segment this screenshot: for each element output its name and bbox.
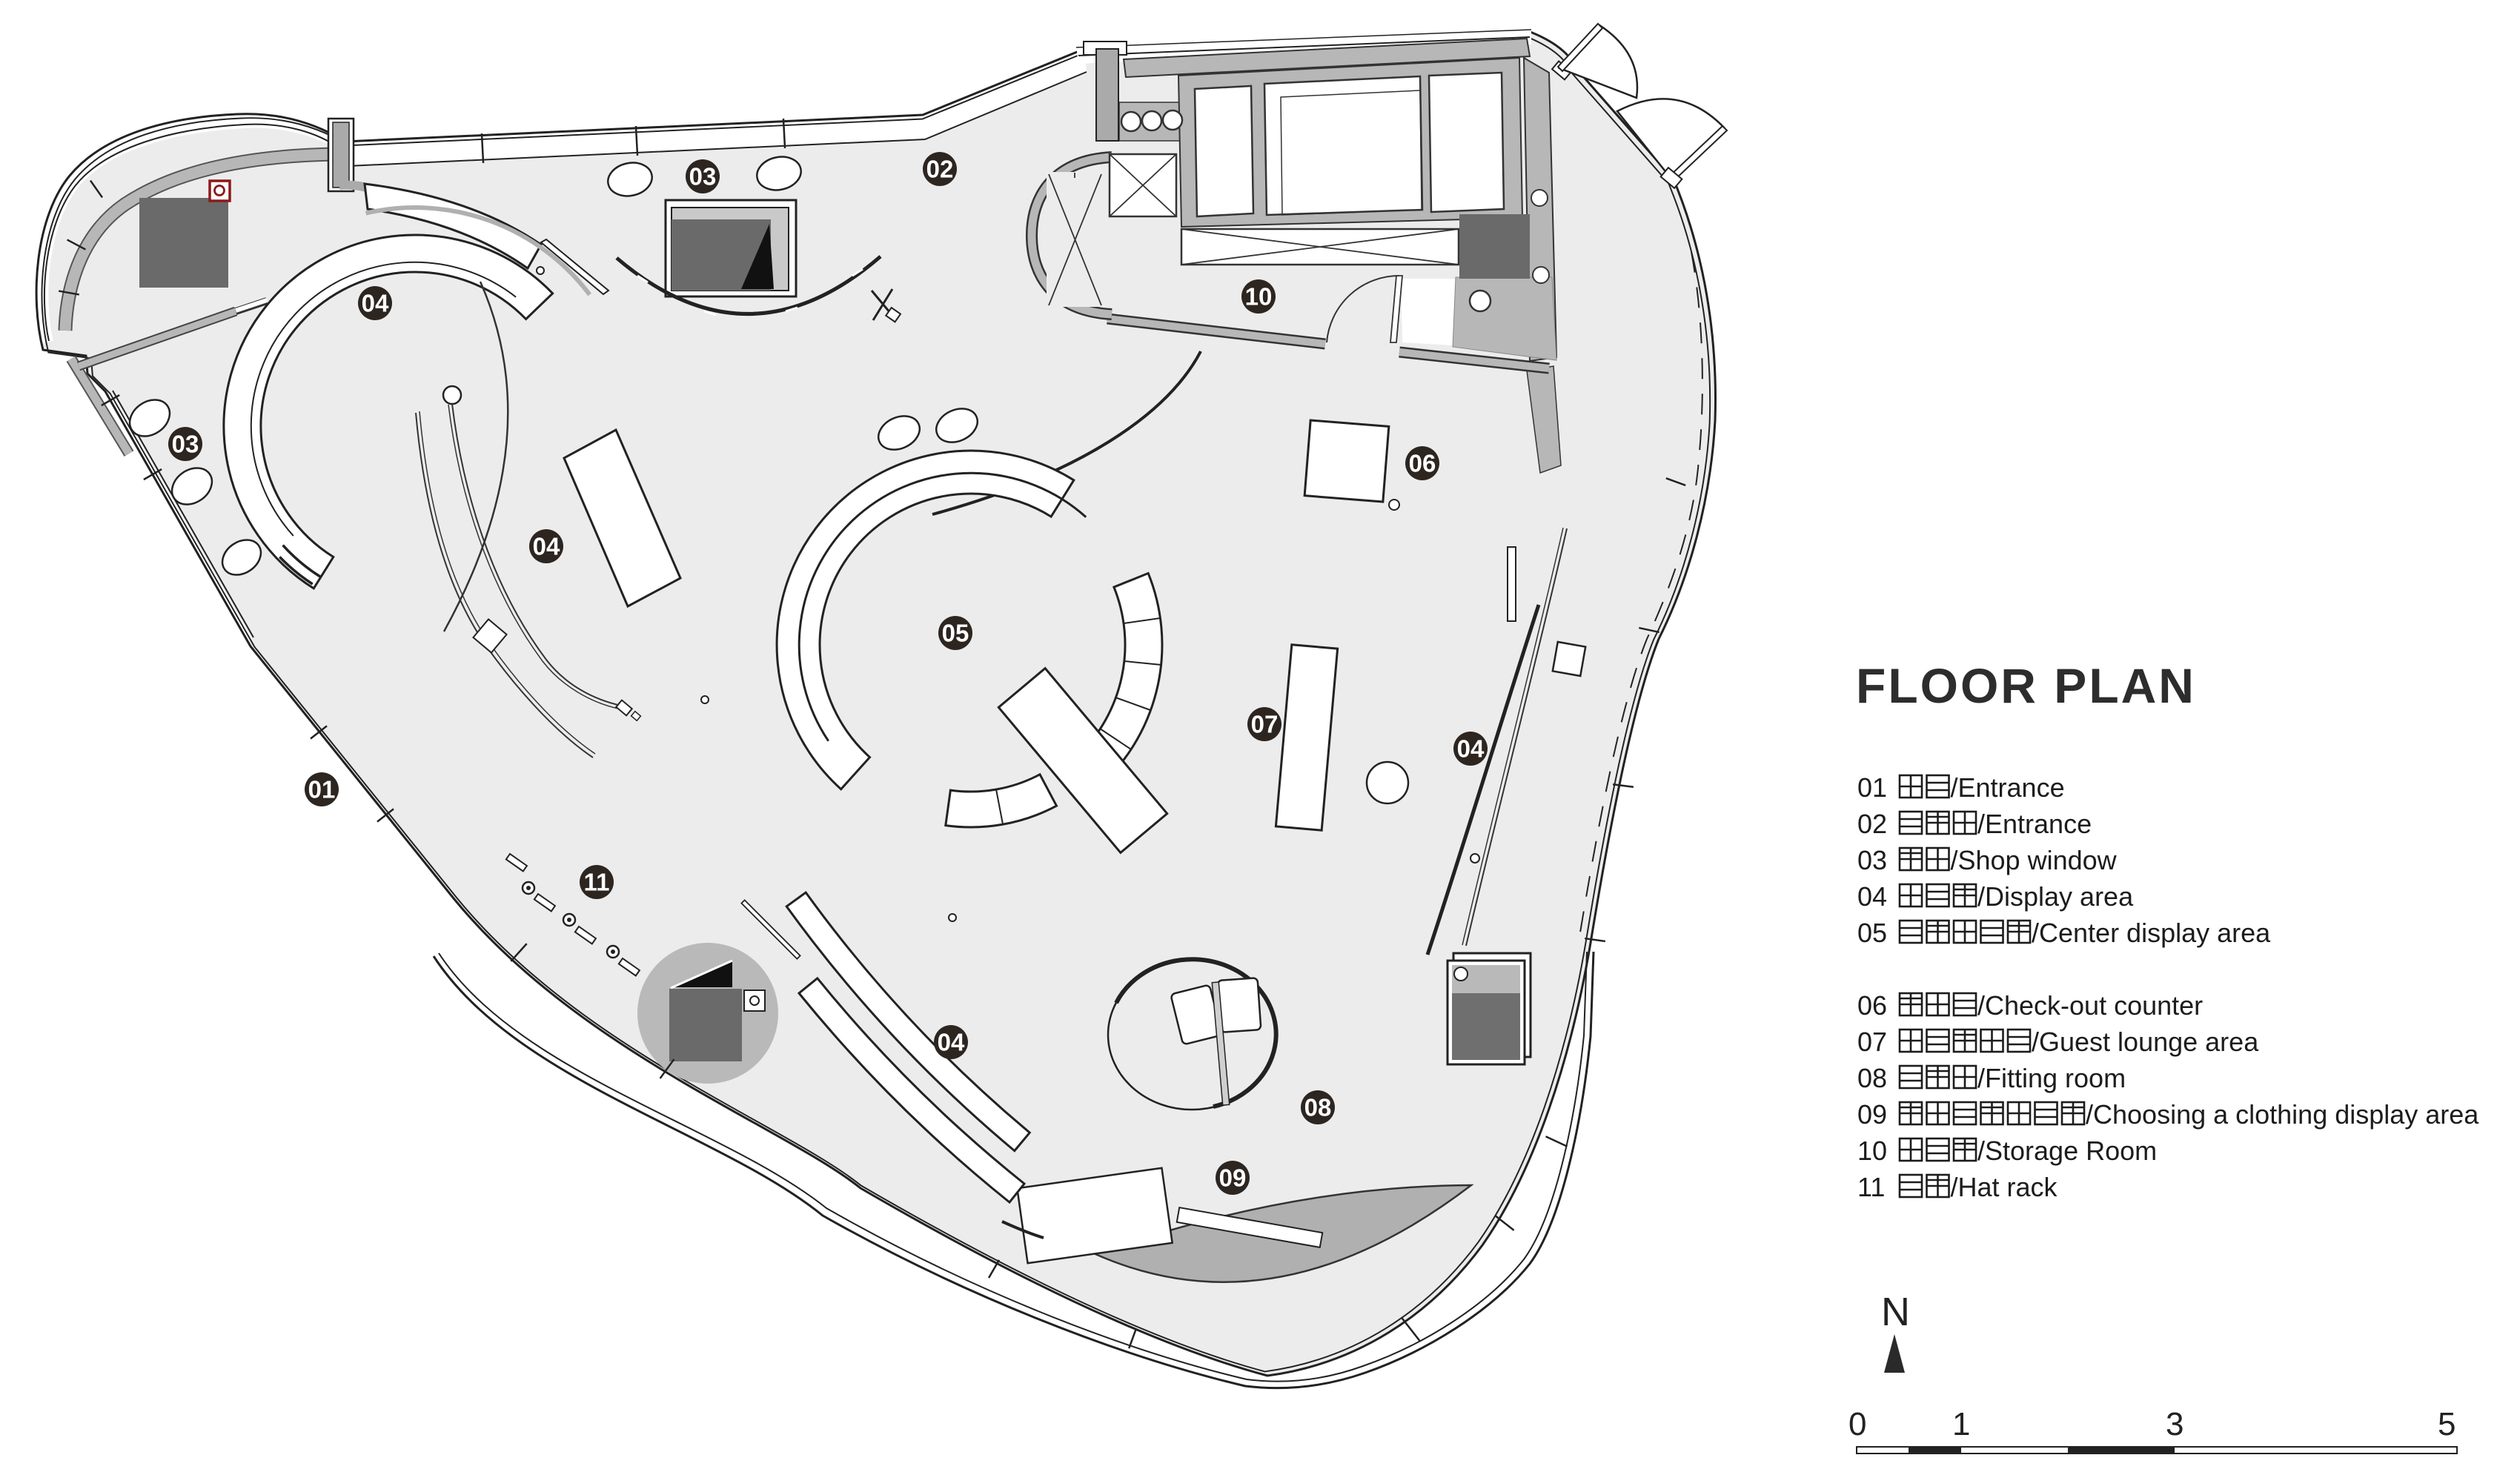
svg-text:/Center display area: /Center display area [2032, 918, 2271, 948]
svg-text:/Display area: /Display area [1977, 881, 2134, 912]
svg-text:/Shop window: /Shop window [1951, 845, 2118, 875]
svg-text:05: 05 [1857, 918, 1887, 948]
svg-text:0: 0 [1848, 1406, 1866, 1442]
svg-text:10: 10 [1245, 283, 1273, 311]
svg-text:/Hat rack: /Hat rack [1951, 1172, 2058, 1202]
svg-text:06: 06 [1409, 450, 1436, 477]
svg-text:03: 03 [1857, 845, 1887, 875]
svg-text:07: 07 [1251, 711, 1279, 738]
svg-text:04: 04 [533, 533, 560, 560]
svg-text:11: 11 [1857, 1172, 1885, 1202]
svg-text:FLOOR PLAN: FLOOR PLAN [1856, 658, 2196, 713]
svg-text:02: 02 [926, 156, 954, 183]
svg-text:07: 07 [1857, 1027, 1887, 1057]
svg-text:/Entrance: /Entrance [1951, 772, 2065, 803]
svg-text:02: 02 [1857, 809, 1887, 839]
svg-text:1: 1 [1952, 1406, 1970, 1442]
svg-text:01: 01 [1857, 772, 1887, 803]
svg-text:/Check-out counter: /Check-out counter [1977, 990, 2203, 1021]
svg-text:04: 04 [1857, 881, 1887, 912]
svg-text:04: 04 [938, 1029, 965, 1056]
svg-text:03: 03 [689, 163, 717, 190]
svg-text:3: 3 [2166, 1406, 2184, 1442]
svg-text:01: 01 [308, 776, 336, 803]
svg-text:04: 04 [362, 290, 389, 317]
svg-text:/Entrance: /Entrance [1977, 809, 2092, 839]
svg-text:/Fitting room: /Fitting room [1977, 1063, 2126, 1093]
svg-text:03: 03 [172, 431, 199, 458]
svg-text:/Guest lounge area: /Guest lounge area [2032, 1027, 2259, 1057]
svg-text:5: 5 [2438, 1406, 2456, 1442]
svg-text:08: 08 [1857, 1063, 1887, 1093]
svg-text:09: 09 [1219, 1164, 1247, 1192]
svg-text:/Choosing a clothing display a: /Choosing a clothing display area [2086, 1099, 2479, 1130]
svg-text:04: 04 [1457, 735, 1485, 763]
svg-text:N: N [1881, 1290, 1910, 1334]
svg-text:10: 10 [1857, 1136, 1887, 1166]
svg-text:05: 05 [942, 620, 969, 647]
svg-text:06: 06 [1857, 990, 1887, 1021]
svg-text:/Storage Room: /Storage Room [1977, 1136, 2157, 1166]
svg-text:11: 11 [584, 869, 610, 896]
svg-text:09: 09 [1857, 1099, 1887, 1130]
svg-text:08: 08 [1304, 1094, 1332, 1121]
